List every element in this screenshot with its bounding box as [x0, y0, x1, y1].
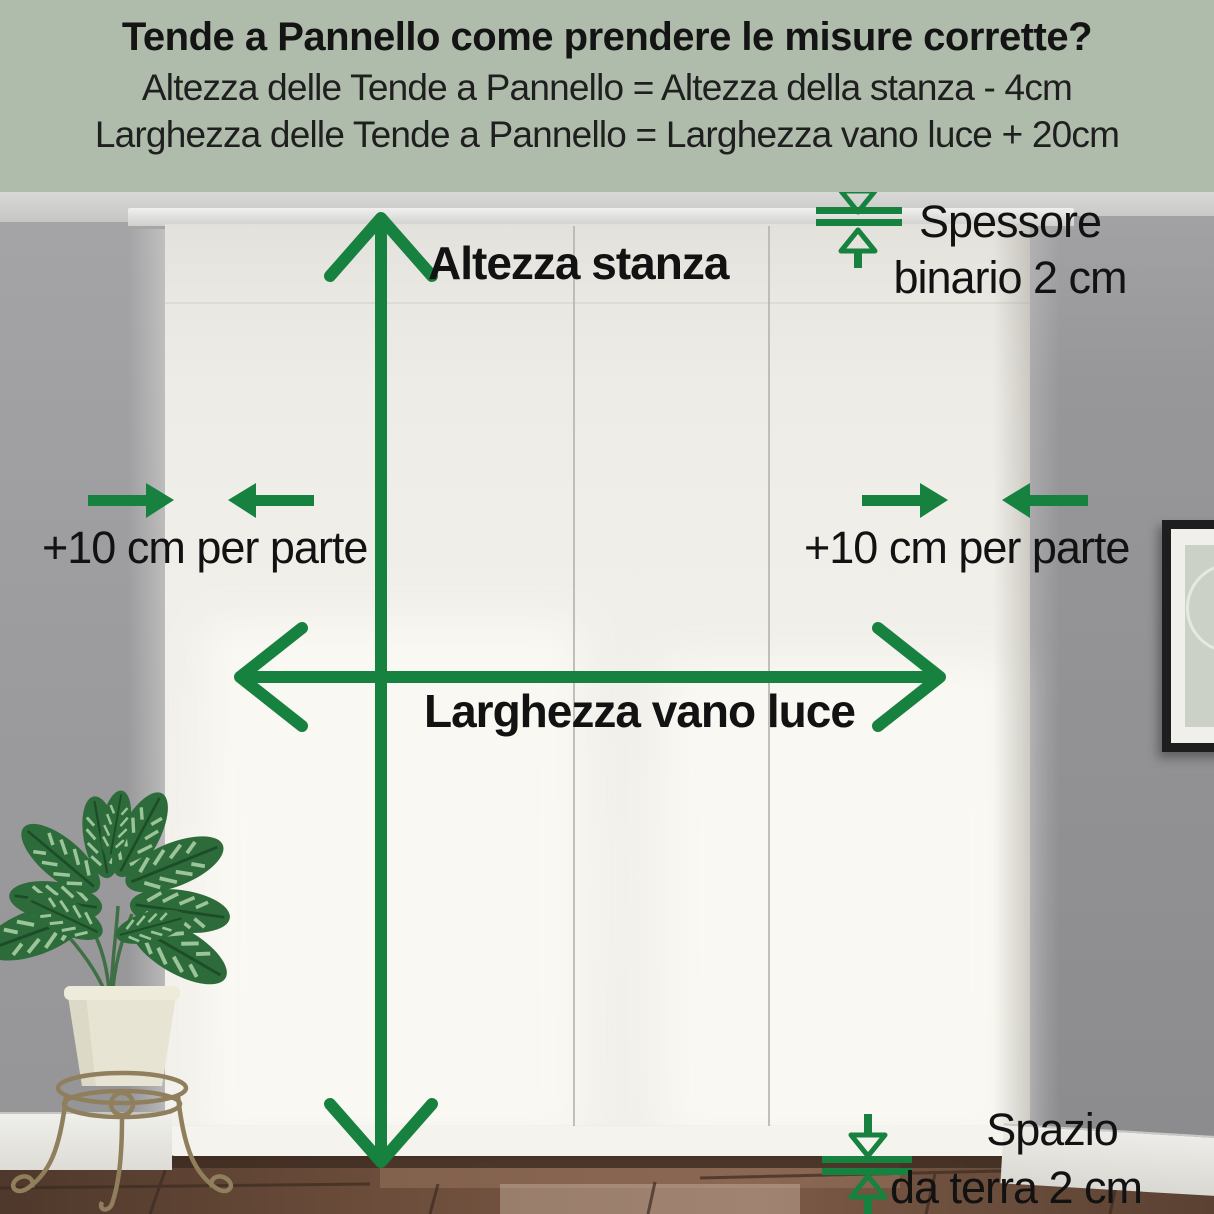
floor-gap-label-line2: da terra 2 cm	[876, 1162, 1156, 1214]
opening-width-label: Larghezza vano luce	[424, 684, 855, 738]
height-formula: Altezza delle Tende a Pannello = Altezza…	[142, 64, 1072, 111]
header-banner: Tende a Pannello come prendere le misure…	[0, 0, 1214, 192]
page-title: Tende a Pannello come prendere le misure…	[122, 10, 1092, 64]
picture-frame	[1162, 520, 1214, 752]
left-extension-label: +10 cm per parte	[42, 522, 367, 574]
room-height-label: Altezza stanza	[428, 236, 728, 290]
curtain-bottom-hem	[167, 1126, 1028, 1156]
frame-artwork	[1185, 545, 1214, 727]
track-thickness-label-line1: Spessore	[890, 196, 1130, 248]
frame-mat	[1171, 529, 1214, 743]
track-thickness-label-line2: binario 2 cm	[870, 252, 1150, 304]
right-extension-label: +10 cm per parte	[804, 522, 1129, 574]
measurement-infographic: Tende a Pannello come prendere le misure…	[0, 0, 1214, 1214]
potted-plant	[0, 738, 242, 1214]
width-formula: Larghezza delle Tende a Pannello = Largh…	[95, 111, 1119, 158]
artwork-circle	[1186, 563, 1214, 653]
panel-edge-shade	[993, 224, 1030, 1150]
floor-gap-label-line1: Spazio	[932, 1104, 1172, 1156]
